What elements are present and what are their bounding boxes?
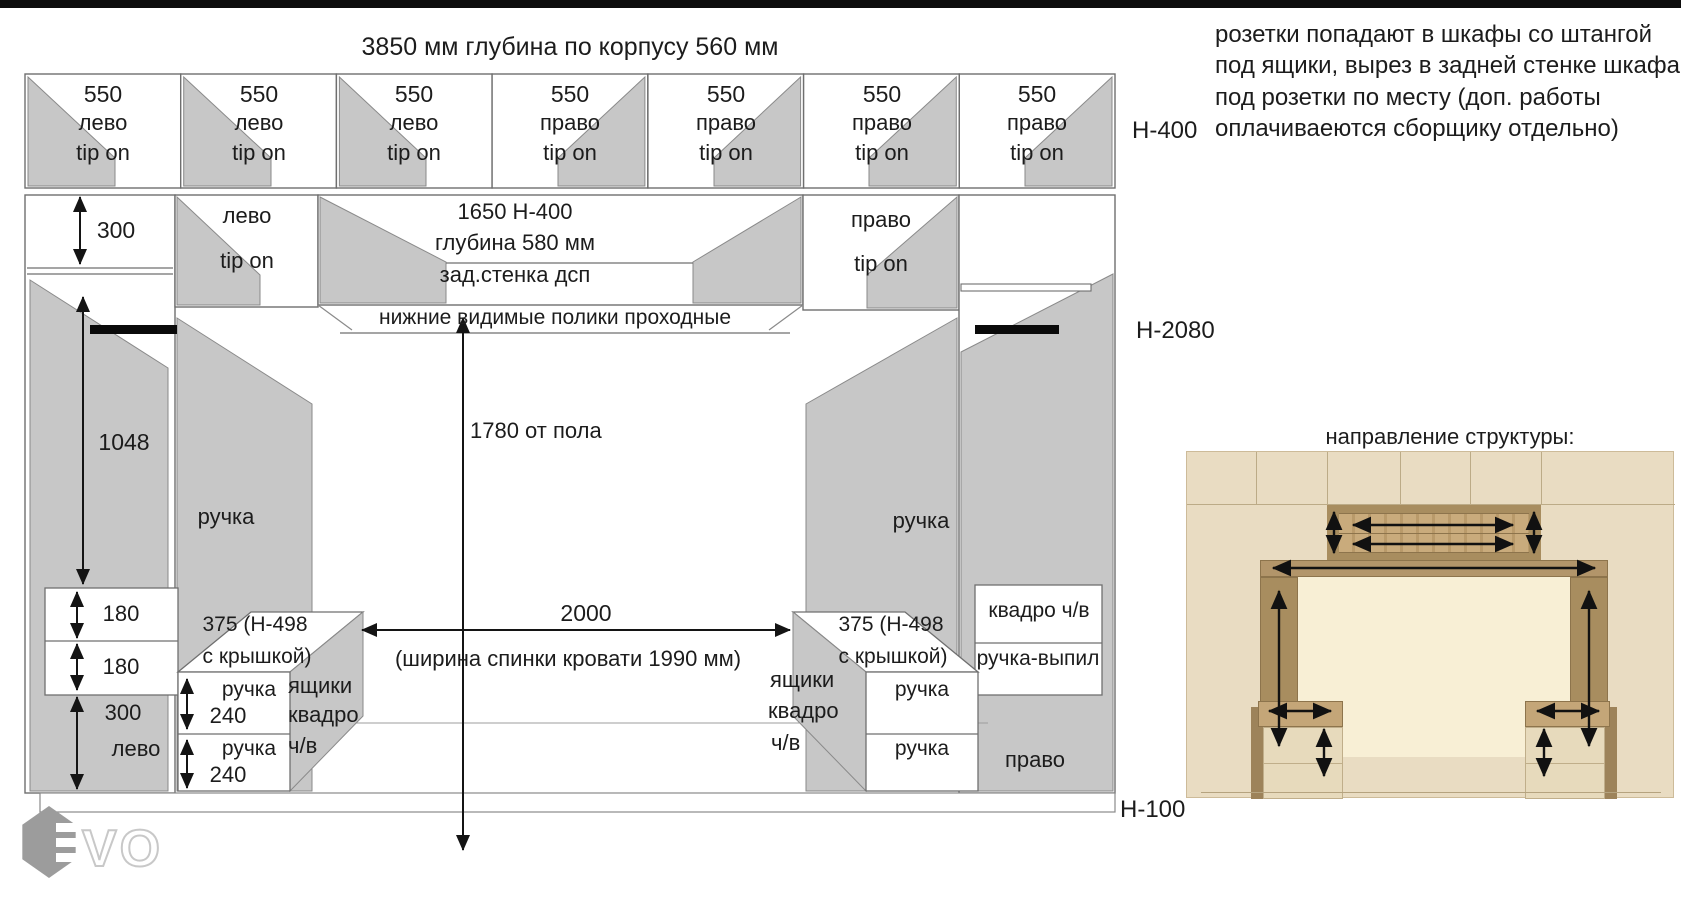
top-cell-1-size: 550 bbox=[25, 82, 181, 108]
row2-right-mech: tip on bbox=[806, 252, 956, 277]
page: 3850 мм глубина по корпусу 560 мм розетк… bbox=[0, 0, 1681, 900]
handle-left: ручка bbox=[188, 505, 264, 530]
left-ns-note-2: квадро bbox=[288, 703, 380, 728]
top-cell-7-mech: tip on bbox=[959, 141, 1115, 166]
row2-right-side: право bbox=[806, 208, 956, 233]
note-line-1: розетки попадают в шкафы со штангой bbox=[1215, 22, 1681, 49]
grain-direction-arrows bbox=[1187, 452, 1675, 799]
top-cell-4-mech: tip on bbox=[492, 141, 648, 166]
dim-300-top: 300 bbox=[88, 218, 144, 244]
top-cell-5-mech: tip on bbox=[648, 141, 804, 166]
shelves-note: нижние видимые полики проходные bbox=[330, 306, 780, 330]
dim-180-a: 180 bbox=[94, 602, 148, 627]
note-line-3: под розетки по месту (доп. работы bbox=[1215, 85, 1681, 112]
right-ns-drawer-2: ручка bbox=[884, 737, 960, 761]
left-col-side-bottom: лево bbox=[100, 737, 172, 762]
top-cell-3-side: лево bbox=[336, 111, 492, 136]
top-cell-3-mech: tip on bbox=[336, 141, 492, 166]
right-ns-cap-1: 375 (Н-498 bbox=[824, 613, 958, 637]
logo: VO bbox=[18, 806, 178, 884]
top-cell-6-side: право bbox=[804, 111, 960, 136]
left-ns-note-3: ч/в bbox=[288, 734, 340, 759]
top-cell-2-mech: tip on bbox=[181, 141, 337, 166]
logo-text: VO bbox=[82, 820, 163, 878]
dim-1048: 1048 bbox=[92, 430, 156, 456]
right-col-side: право bbox=[995, 748, 1075, 773]
drawing-title: 3850 мм глубина по корпусу 560 мм bbox=[320, 33, 820, 61]
left-ns-note-1: ящики bbox=[288, 674, 372, 699]
row2-center-line1: 1650 Н-400 bbox=[330, 200, 700, 225]
right-ns-note-1: ящики bbox=[770, 668, 854, 693]
dim-240-b: 240 bbox=[200, 763, 256, 788]
height-label-h2080: Н-2080 bbox=[1136, 318, 1241, 345]
structure-illustration bbox=[1186, 451, 1674, 798]
row2-left-side: лево bbox=[177, 204, 317, 229]
top-cell-1-mech: tip on bbox=[25, 141, 181, 166]
right-ns-drawer-1: ручка bbox=[884, 678, 960, 702]
handle-right: ручка bbox=[882, 509, 960, 534]
top-cell-3-size: 550 bbox=[336, 82, 492, 108]
structure-heading: направление структуры: bbox=[1300, 425, 1600, 450]
height-label-h100: Н-100 bbox=[1120, 797, 1215, 824]
top-cell-7-side: право bbox=[959, 111, 1115, 136]
row2-center-line3: зад.стенка дсп bbox=[330, 263, 700, 288]
left-ns-cap-2: с крышкой) bbox=[192, 645, 322, 669]
logo-wordmark: VO bbox=[78, 808, 176, 882]
height-label-h400: Н-400 bbox=[1132, 118, 1227, 145]
dim-1780: 1780 от пола bbox=[470, 419, 630, 444]
top-cell-6-mech: tip on bbox=[804, 141, 960, 166]
top-cell-1-side: лево bbox=[25, 111, 181, 136]
note-line-4: оплачиваеются сборщику отдельно) bbox=[1215, 116, 1681, 143]
top-cell-5-size: 550 bbox=[648, 82, 804, 108]
top-cell-4-size: 550 bbox=[492, 82, 648, 108]
dim-240-a: 240 bbox=[200, 704, 256, 729]
right-ns-note-3: ч/в bbox=[771, 731, 823, 756]
top-cell-5-side: право bbox=[648, 111, 804, 136]
right-col-drawer-bottom: ручка-выпил bbox=[972, 647, 1104, 671]
top-cell-2-size: 550 bbox=[181, 82, 337, 108]
right-ns-note-2: квадро bbox=[768, 699, 860, 724]
note-line-2: под ящики, вырез в задней стенке шкафа bbox=[1215, 53, 1681, 80]
dim-2000: 2000 bbox=[540, 601, 632, 627]
bed-note: (ширина спинки кровати 1990 мм) bbox=[362, 647, 774, 672]
top-cell-7-size: 550 bbox=[959, 82, 1115, 108]
right-ns-cap-2: с крышкой) bbox=[828, 645, 958, 669]
left-ns-drawer-2: ручка bbox=[212, 737, 286, 761]
left-ns-drawer-1: ручка bbox=[212, 678, 286, 702]
dim-180-b: 180 bbox=[94, 655, 148, 680]
top-cell-2-side: лево bbox=[181, 111, 337, 136]
top-cell-6-size: 550 bbox=[804, 82, 960, 108]
top-cell-4-side: право bbox=[492, 111, 648, 136]
row2-center-line2: глубина 580 мм bbox=[330, 231, 700, 256]
left-ns-cap-1: 375 (Н-498 bbox=[188, 613, 322, 637]
right-col-drawer-top: квадро ч/в bbox=[978, 599, 1100, 623]
row2-left-mech: tip on bbox=[177, 249, 317, 274]
dim-300-bottom: 300 bbox=[94, 701, 152, 726]
